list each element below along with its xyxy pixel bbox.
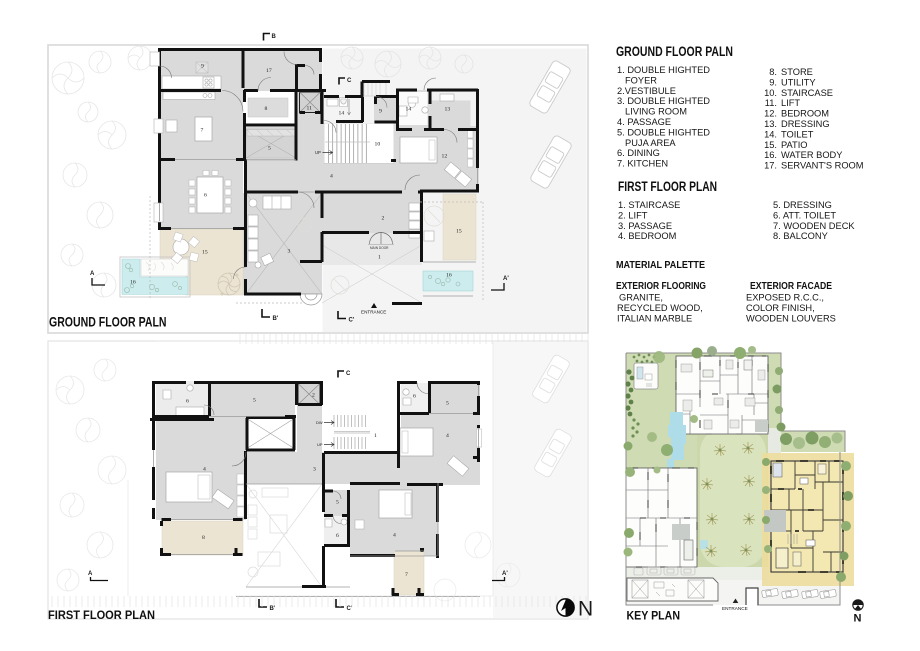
svg-text:LIFT: LIFT (781, 98, 800, 108)
svg-text:EXTERIOR FLOORING: EXTERIOR FLOORING (616, 281, 706, 292)
svg-text:8: 8 (202, 535, 205, 541)
svg-text:N: N (578, 598, 593, 621)
svg-text:C: C (347, 78, 352, 84)
svg-text:7. WOODEN DECK: 7. WOODEN DECK (773, 221, 855, 231)
svg-text:5. DOUBLE HIGHTED: 5. DOUBLE HIGHTED (617, 127, 710, 137)
svg-text:11: 11 (307, 106, 313, 112)
svg-text:6: 6 (204, 193, 207, 199)
svg-text:A': A' (503, 276, 509, 282)
svg-text:1: 1 (374, 433, 377, 439)
svg-text:14.: 14. (764, 129, 777, 139)
svg-text:B': B' (270, 606, 276, 612)
svg-text:16: 16 (130, 280, 136, 286)
svg-text:12.: 12. (764, 109, 777, 119)
svg-text:3: 3 (288, 249, 291, 255)
svg-text:4. BEDROOM: 4. BEDROOM (618, 231, 676, 241)
svg-text:4: 4 (393, 533, 396, 539)
svg-text:EXPOSED R.C.C.,: EXPOSED R.C.C., (746, 293, 824, 303)
svg-text:UP: UP (315, 150, 321, 155)
svg-text:COLOR FINISH,: COLOR FINISH, (746, 303, 815, 313)
svg-text:12: 12 (442, 154, 448, 160)
svg-text:A': A' (502, 571, 508, 577)
svg-text:8. BALCONY: 8. BALCONY (773, 231, 828, 241)
svg-text:6. DINING: 6. DINING (617, 148, 660, 158)
svg-text:6. ATT. TOILET: 6. ATT. TOILET (773, 210, 836, 220)
svg-text:1. DOUBLE HIGHTED: 1. DOUBLE HIGHTED (617, 65, 710, 75)
svg-text:15.: 15. (764, 140, 777, 150)
svg-text:FIRST FLOOR PLAN: FIRST FLOOR PLAN (48, 608, 155, 622)
svg-text:16: 16 (446, 273, 452, 279)
svg-text:KEY PLAN: KEY PLAN (627, 611, 681, 623)
svg-text:1: 1 (378, 255, 381, 261)
svg-text:8.: 8. (769, 67, 777, 77)
svg-text:PUJA AREA: PUJA AREA (625, 138, 676, 148)
svg-text:14: 14 (406, 107, 412, 113)
svg-text:14: 14 (339, 111, 345, 117)
svg-text:2: 2 (312, 393, 315, 399)
svg-text:2.VESTIBULE: 2.VESTIBULE (617, 86, 676, 96)
svg-text:DRESSING: DRESSING (781, 119, 830, 129)
svg-text:TOILET: TOILET (781, 129, 814, 139)
svg-text:5: 5 (253, 398, 256, 404)
svg-text:EXTERIOR FACADE: EXTERIOR FACADE (750, 281, 832, 292)
svg-text:2. LIFT: 2. LIFT (618, 210, 648, 220)
svg-text:FIRST FLOOR PLAN: FIRST FLOOR PLAN (618, 179, 717, 194)
svg-text:LIVING ROOM: LIVING ROOM (625, 107, 687, 117)
svg-text:7: 7 (405, 572, 408, 578)
svg-text:WOODEN LOUVERS: WOODEN LOUVERS (746, 314, 836, 324)
svg-text:STAIRCASE: STAIRCASE (781, 88, 833, 98)
svg-text:6: 6 (336, 533, 339, 539)
svg-text:ENTRANCE: ENTRANCE (361, 310, 386, 315)
svg-text:5. DRESSING: 5. DRESSING (773, 200, 832, 210)
svg-text:11.: 11. (765, 98, 777, 108)
svg-text:BEDROOM: BEDROOM (781, 109, 829, 119)
svg-text:5: 5 (446, 401, 449, 407)
svg-text:4: 4 (330, 174, 333, 180)
svg-text:8: 8 (265, 106, 268, 112)
svg-text:7. KITCHEN: 7. KITCHEN (617, 159, 668, 169)
svg-text:SERVANT'S ROOM: SERVANT'S ROOM (781, 161, 864, 171)
svg-text:4. PASSAGE: 4. PASSAGE (617, 117, 671, 127)
svg-text:WATER BODY: WATER BODY (781, 150, 842, 160)
svg-text:GRANITE,: GRANITE, (619, 293, 663, 303)
svg-text:5: 5 (268, 146, 271, 152)
svg-text:PATIO: PATIO (781, 140, 808, 150)
svg-text:10: 10 (375, 142, 381, 148)
svg-text:4: 4 (446, 433, 449, 439)
svg-text:3. PASSAGE: 3. PASSAGE (618, 221, 672, 231)
svg-text:B: B (272, 34, 277, 40)
svg-text:15: 15 (456, 229, 462, 235)
svg-text:2: 2 (382, 216, 385, 222)
svg-text:10.: 10. (764, 88, 777, 98)
svg-text:1. STAIRCASE: 1. STAIRCASE (618, 200, 680, 210)
svg-text:N: N (854, 613, 862, 625)
svg-text:7: 7 (201, 128, 204, 134)
svg-text:C: C (346, 371, 351, 377)
svg-text:6: 6 (413, 394, 416, 400)
svg-text:MAIN DOOR: MAIN DOOR (370, 246, 389, 250)
svg-text:UTILITY: UTILITY (781, 77, 816, 87)
svg-text:13.: 13. (764, 119, 777, 129)
svg-text:15: 15 (202, 250, 208, 256)
svg-text:3: 3 (313, 467, 316, 473)
svg-text:9.: 9. (769, 77, 777, 87)
svg-text:ENTRANCE: ENTRANCE (722, 606, 748, 611)
svg-text:MATERIAL PALETTE: MATERIAL PALETTE (616, 260, 705, 271)
svg-text:B': B' (273, 316, 279, 322)
svg-text:A: A (88, 571, 93, 577)
svg-text:5: 5 (336, 500, 339, 506)
svg-text:FOYER: FOYER (625, 75, 657, 85)
svg-text:9: 9 (379, 109, 382, 115)
svg-text:17: 17 (266, 68, 272, 74)
svg-text:STORE: STORE (781, 67, 813, 77)
svg-text:RECYCLED WOOD,: RECYCLED WOOD, (617, 303, 703, 313)
svg-text:6: 6 (186, 399, 189, 405)
svg-text:9: 9 (201, 64, 204, 70)
svg-text:DW: DW (316, 420, 323, 425)
svg-text:3. DOUBLE HIGHTED: 3. DOUBLE HIGHTED (617, 96, 710, 106)
svg-text:UP: UP (317, 442, 323, 447)
svg-text:4: 4 (203, 467, 206, 473)
svg-text:17.: 17. (764, 161, 777, 171)
svg-text:GROUND FLOOR PALN: GROUND FLOOR PALN (49, 315, 167, 330)
svg-text:13: 13 (445, 107, 451, 113)
svg-text:A: A (90, 271, 95, 277)
svg-text:ITALIAN MARBLE: ITALIAN MARBLE (617, 314, 692, 324)
svg-text:C': C' (349, 318, 355, 324)
svg-text:16.: 16. (764, 150, 777, 160)
svg-text:GROUND FLOOR PALN: GROUND FLOOR PALN (616, 44, 733, 59)
